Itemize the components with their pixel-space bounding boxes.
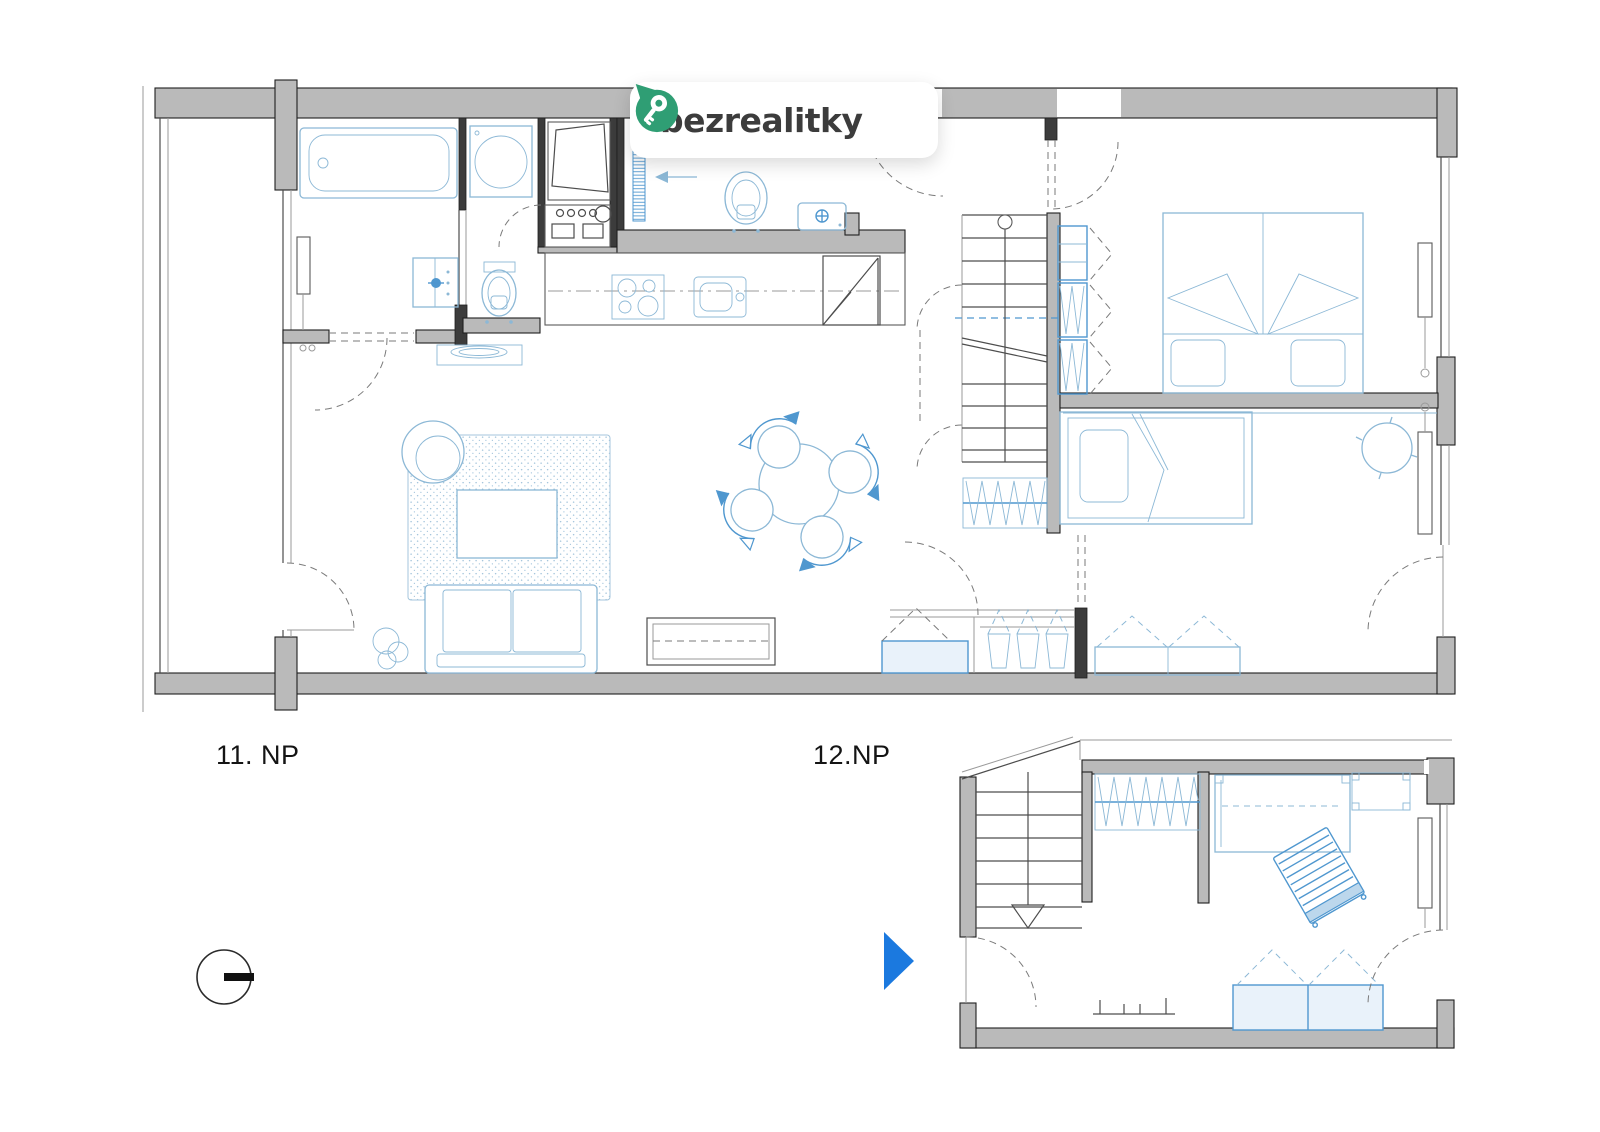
bedroom2 bbox=[1060, 403, 1437, 675]
closet-12np bbox=[1095, 774, 1200, 830]
bedroom2-balcony-door-arc bbox=[1368, 557, 1443, 632]
single-bed bbox=[1060, 412, 1252, 524]
dining-set bbox=[710, 406, 885, 577]
double-bed bbox=[1163, 213, 1363, 393]
floorplan-12np bbox=[960, 737, 1454, 1048]
washing-machine bbox=[470, 126, 532, 197]
entry-closet bbox=[548, 122, 610, 200]
wardrobe-12np bbox=[1233, 950, 1383, 1030]
storage-door-arc bbox=[905, 542, 978, 615]
pillow bbox=[1291, 340, 1345, 386]
living-room bbox=[373, 421, 775, 673]
side-table-12np bbox=[1352, 773, 1410, 810]
key-pin-icon bbox=[630, 82, 680, 136]
kitchen-counter bbox=[545, 253, 905, 325]
plant bbox=[373, 628, 408, 669]
pillow bbox=[1080, 430, 1128, 502]
floorplan-page: bezrealitky 11. NP 12.NP bbox=[0, 0, 1600, 1132]
livingroom-door-arc bbox=[287, 563, 354, 630]
play-arrow-icon bbox=[884, 932, 914, 990]
radiator-12np bbox=[1418, 818, 1432, 928]
bedroom1-door-arc bbox=[1051, 142, 1118, 209]
armchair bbox=[402, 421, 464, 483]
wardrobe-column bbox=[1058, 226, 1112, 394]
floorplan-11np bbox=[143, 80, 1457, 712]
bathroom-door-arc bbox=[315, 338, 387, 410]
floorplan-drawing bbox=[0, 0, 1600, 1132]
staircase-11np bbox=[955, 215, 1060, 462]
tv-bench bbox=[647, 618, 775, 665]
understair-wardrobe bbox=[963, 478, 1047, 528]
round-chair bbox=[1356, 417, 1417, 479]
logo-text: bezrealitky bbox=[660, 104, 863, 137]
hall-storage bbox=[882, 478, 1075, 673]
staircase-12np bbox=[976, 772, 1082, 928]
bezrealitky-logo: bezrealitky bbox=[630, 82, 938, 158]
sink-vanity bbox=[413, 258, 458, 307]
entry-closet-door-arc bbox=[499, 205, 541, 247]
bathtub bbox=[300, 128, 457, 198]
bedroom2-radiator bbox=[1418, 403, 1432, 534]
bedroom1-radiator bbox=[1418, 243, 1432, 377]
kitchen-appliance-block bbox=[545, 205, 611, 247]
windows-12np bbox=[1440, 804, 1447, 930]
direction-arrow-left bbox=[655, 171, 697, 183]
stairs-down-arrow bbox=[1012, 905, 1044, 928]
floor-label-12np: 12.NP bbox=[813, 740, 891, 771]
compass-icon bbox=[197, 950, 254, 1004]
shoe-cabinets bbox=[974, 610, 1075, 673]
wc-toilet bbox=[725, 172, 767, 233]
bedroom1 bbox=[1058, 213, 1432, 394]
bedroom2-wardrobe bbox=[1095, 616, 1240, 675]
door-arc-12np-left bbox=[966, 937, 1036, 1007]
coffee-table bbox=[457, 490, 557, 558]
lounger bbox=[1273, 827, 1367, 928]
laundry-console bbox=[437, 345, 522, 365]
sofa bbox=[425, 585, 597, 673]
storage-bench bbox=[882, 608, 968, 673]
floor-label-11np: 11. NP bbox=[216, 740, 300, 771]
bathroom-toilet bbox=[482, 262, 516, 324]
floor-grille bbox=[1093, 998, 1175, 1014]
wc-boiler bbox=[798, 203, 846, 230]
daybed-12np bbox=[1215, 775, 1350, 852]
pillow bbox=[1171, 340, 1225, 386]
